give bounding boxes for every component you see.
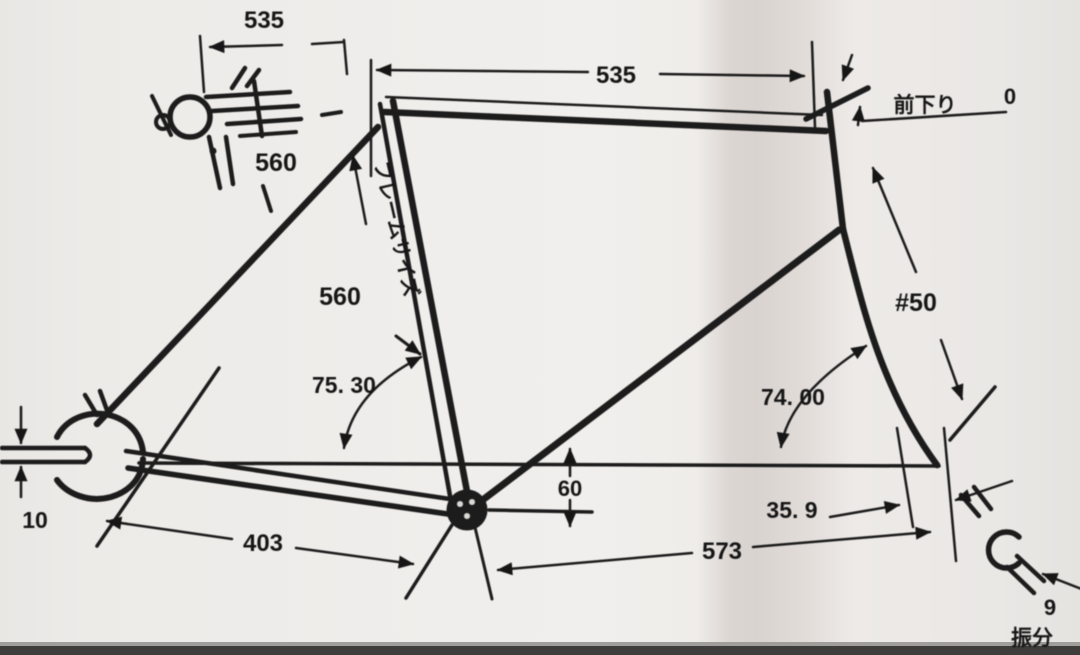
dim-label-rear-axle: 10 <box>22 507 48 533</box>
scan-bottom-bar <box>0 646 1080 655</box>
dim-label-seat-angle: 75. 30 <box>312 372 376 398</box>
bb-hole-icon <box>469 499 475 505</box>
diagram-canvas: 535 535 前下り 0 フレームサイズ 560 560 75. 30 <box>0 0 1080 655</box>
dim-label-chainstay: 403 <box>243 530 283 557</box>
bb-center-reference-line <box>489 510 592 512</box>
dim-value-stem-size: 560 <box>255 149 297 177</box>
dim-label-top-tube: 535 <box>596 62 636 89</box>
dim-label-front-end: 振分 <box>1011 626 1053 650</box>
dim-label-fork-offset: 35. 9 <box>766 497 817 523</box>
frame-geometry-diagram: 535 535 前下り 0 フレームサイズ 560 560 75. 30 <box>0 0 1080 655</box>
dim-value-front-drop: 0 <box>1004 84 1016 109</box>
dim-label-front-center: 573 <box>702 538 742 565</box>
dimension-rear-axle-10: 10 <box>22 507 48 533</box>
dim-label-stem-span: 535 <box>244 7 284 34</box>
dim-label-front-drop: 前下り <box>894 93 957 117</box>
dim-value-frame-size: 560 <box>319 283 361 311</box>
dim-label-head-angle: 74. 00 <box>761 384 825 410</box>
bb-hole-icon <box>457 501 463 507</box>
dim-label-fork: #50 <box>895 289 937 317</box>
dim-label-bb-drop: 60 <box>558 476 582 501</box>
dim-value-front-end: 9 <box>1044 595 1056 620</box>
stem-dot <box>210 148 217 155</box>
scan-edge-shadow <box>0 642 1080 646</box>
bb-hole-icon <box>464 513 470 519</box>
